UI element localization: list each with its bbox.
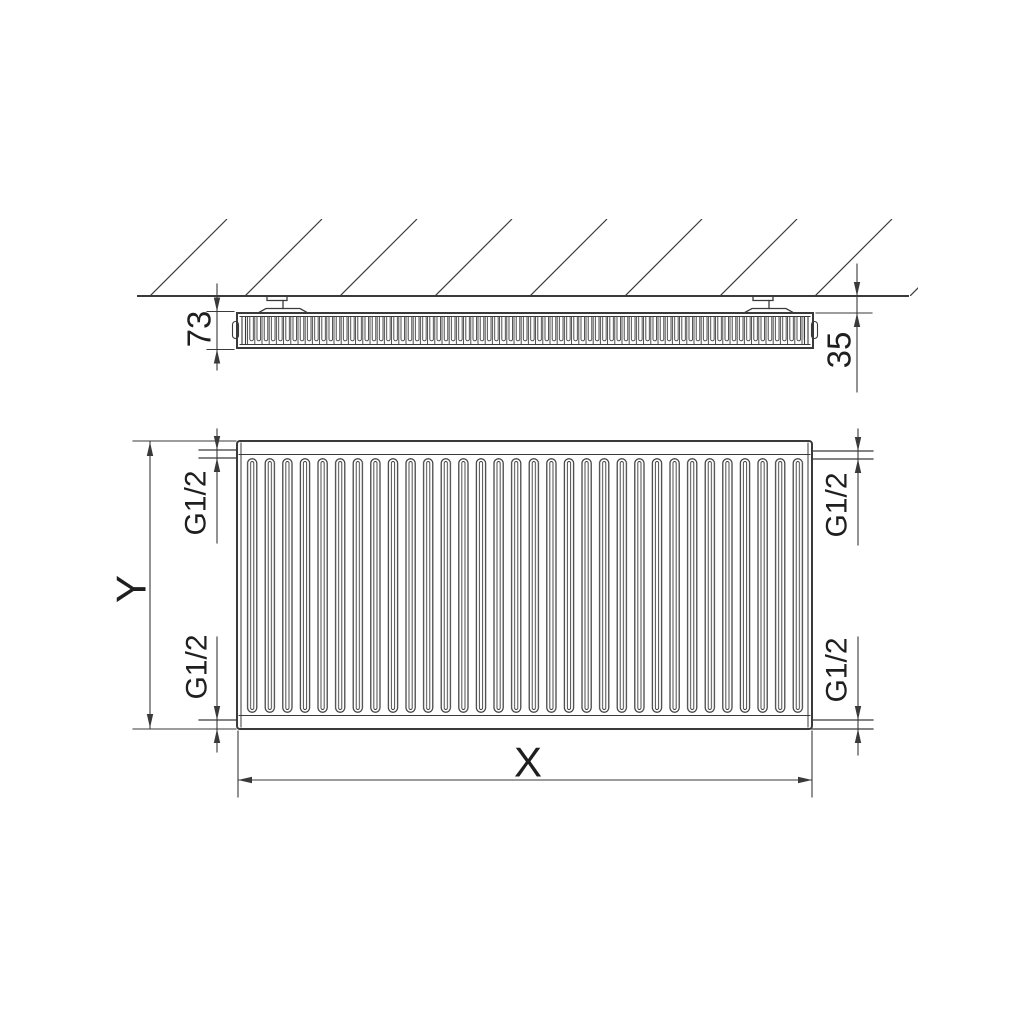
dimension-connection-bottom-left: G1/2 <box>181 634 221 752</box>
arrow-up-icon <box>214 350 220 364</box>
technical-drawing-canvas: 73 35 Y <box>0 0 1024 1024</box>
dimension-connection-top-right: G1/2 <box>821 429 862 545</box>
depth-dimension-label: 73 <box>181 311 218 348</box>
wall-distance-dimension-label: 35 <box>821 332 858 369</box>
wall-hatching <box>140 219 918 296</box>
connection-thread-label: G1/2 <box>821 472 854 537</box>
dimension-connection-top-left: G1/2 <box>180 429 221 543</box>
dimension-width: X <box>238 731 812 797</box>
connection-thread-label: G1/2 <box>821 637 854 702</box>
arrow-down-icon <box>855 437 861 451</box>
convector-fins <box>247 317 805 345</box>
connection-thread-label: G1/2 <box>180 470 213 535</box>
arrow-down-icon <box>855 706 861 720</box>
connection-stub-top-right <box>812 451 873 459</box>
radiator-dimension-drawing: 73 35 Y <box>0 0 1024 1024</box>
connection-stub-top-left <box>199 450 237 458</box>
arrow-down-icon <box>214 706 220 720</box>
arrow-up-icon <box>147 442 153 456</box>
connection-stub-bottom-right <box>812 720 873 729</box>
wall-section <box>138 219 918 296</box>
arrow-up-icon <box>854 313 860 327</box>
arrow-down-icon <box>214 298 220 312</box>
dimension-connection-bottom-right: G1/2 <box>821 637 862 755</box>
wall-bracket-left <box>258 296 308 313</box>
width-dimension-label: X <box>514 739 542 786</box>
arrow-left-icon <box>238 777 252 783</box>
arrow-down-icon <box>147 714 153 728</box>
radiator-front-view <box>199 441 873 729</box>
front-panel-grooves <box>243 458 806 713</box>
height-dimension-label: Y <box>108 575 155 603</box>
connection-thread-label: G1/2 <box>181 634 214 699</box>
arrow-up-icon <box>214 729 220 743</box>
radiator-side-view <box>233 313 818 348</box>
arrow-down-icon <box>214 436 220 450</box>
arrow-up-icon <box>855 729 861 743</box>
arrow-up-icon <box>214 458 220 472</box>
wall-bracket-right <box>744 296 794 313</box>
arrow-right-icon <box>798 777 812 783</box>
arrow-up-icon <box>855 459 861 473</box>
